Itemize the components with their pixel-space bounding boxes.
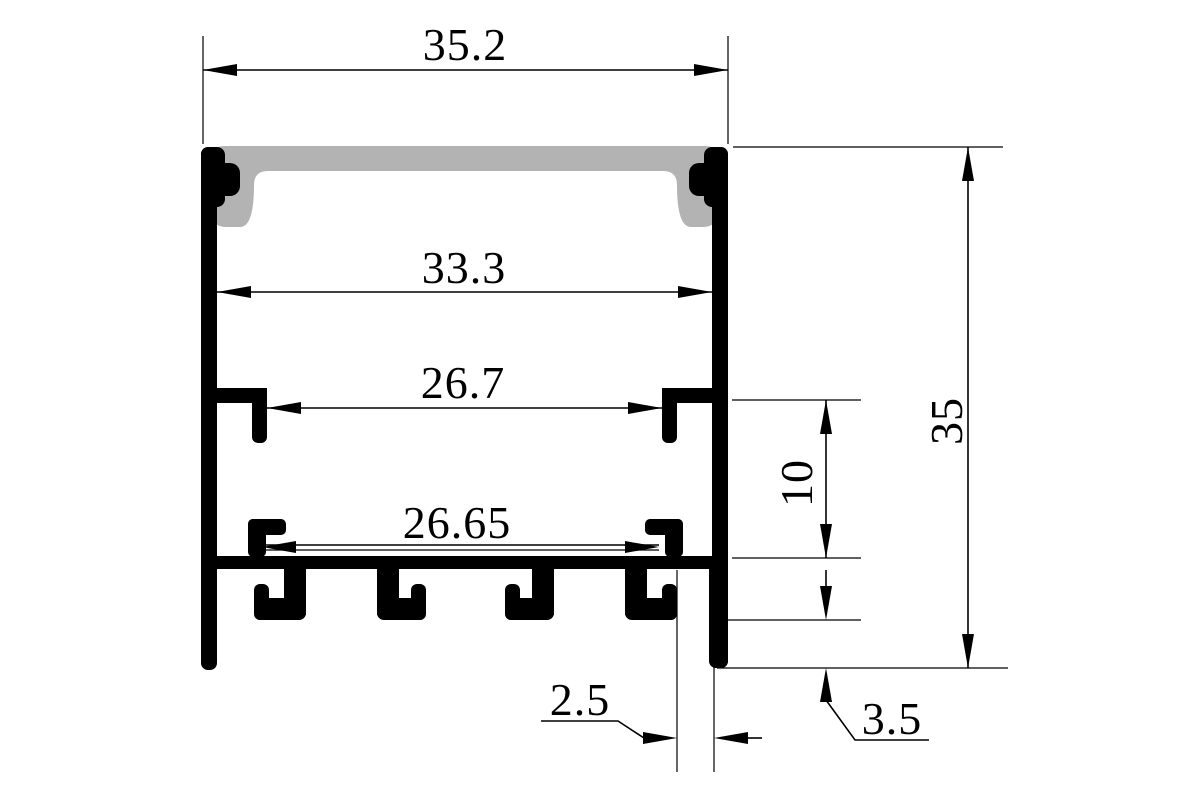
right-cover-clip-nub bbox=[689, 163, 716, 196]
dimension-label-edge-slot: 2.5 bbox=[550, 674, 611, 725]
left-plate-nub-flange bbox=[248, 519, 286, 535]
hook-b-nub bbox=[411, 584, 426, 620]
hook-c-nub bbox=[505, 584, 520, 620]
dimension-label-clip-opening: 26.7 bbox=[421, 357, 506, 408]
profile-cross-section-drawing: 35.2 33.3 26.7 26.65 35 10 bbox=[0, 0, 1200, 800]
dimension-label-inner-width: 33.3 bbox=[422, 242, 507, 293]
dimension-label-base-inner-width: 26.65 bbox=[403, 497, 512, 548]
right-shelf-finger bbox=[662, 388, 677, 443]
left-cover-clip-nub bbox=[213, 163, 240, 196]
left-shelf-finger bbox=[252, 388, 267, 443]
hook-a-nub bbox=[254, 584, 269, 620]
right-wall-lower bbox=[709, 555, 728, 668]
dimension-label-lower-wall-height: 10 bbox=[771, 459, 822, 507]
dimension-label-bottom-flange: 3.5 bbox=[862, 693, 923, 744]
hook-d-nub bbox=[662, 584, 677, 620]
left-wall bbox=[201, 147, 217, 670]
dimension-label-overall-width: 35.2 bbox=[423, 19, 508, 70]
technical-drawing-page: 35.2 33.3 26.7 26.65 35 10 bbox=[0, 0, 1200, 800]
dimension-label-overall-height: 35 bbox=[921, 397, 972, 445]
right-plate-nub-flange bbox=[645, 519, 683, 535]
